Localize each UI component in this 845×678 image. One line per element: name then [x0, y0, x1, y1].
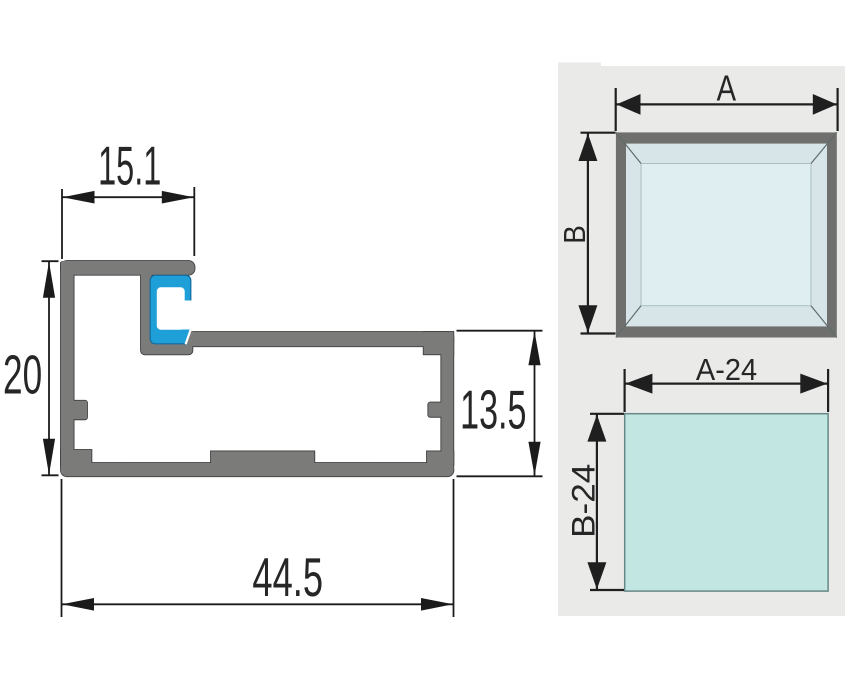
svg-text:B: B — [557, 225, 592, 244]
svg-text:B-24: B-24 — [566, 464, 603, 538]
svg-text:13.5: 13.5 — [460, 379, 526, 440]
svg-text:44.5: 44.5 — [252, 546, 323, 607]
svg-text:A-24: A-24 — [696, 353, 757, 387]
svg-text:20: 20 — [3, 343, 42, 405]
svg-text:15.1: 15.1 — [98, 135, 161, 197]
svg-text:A: A — [717, 68, 737, 109]
